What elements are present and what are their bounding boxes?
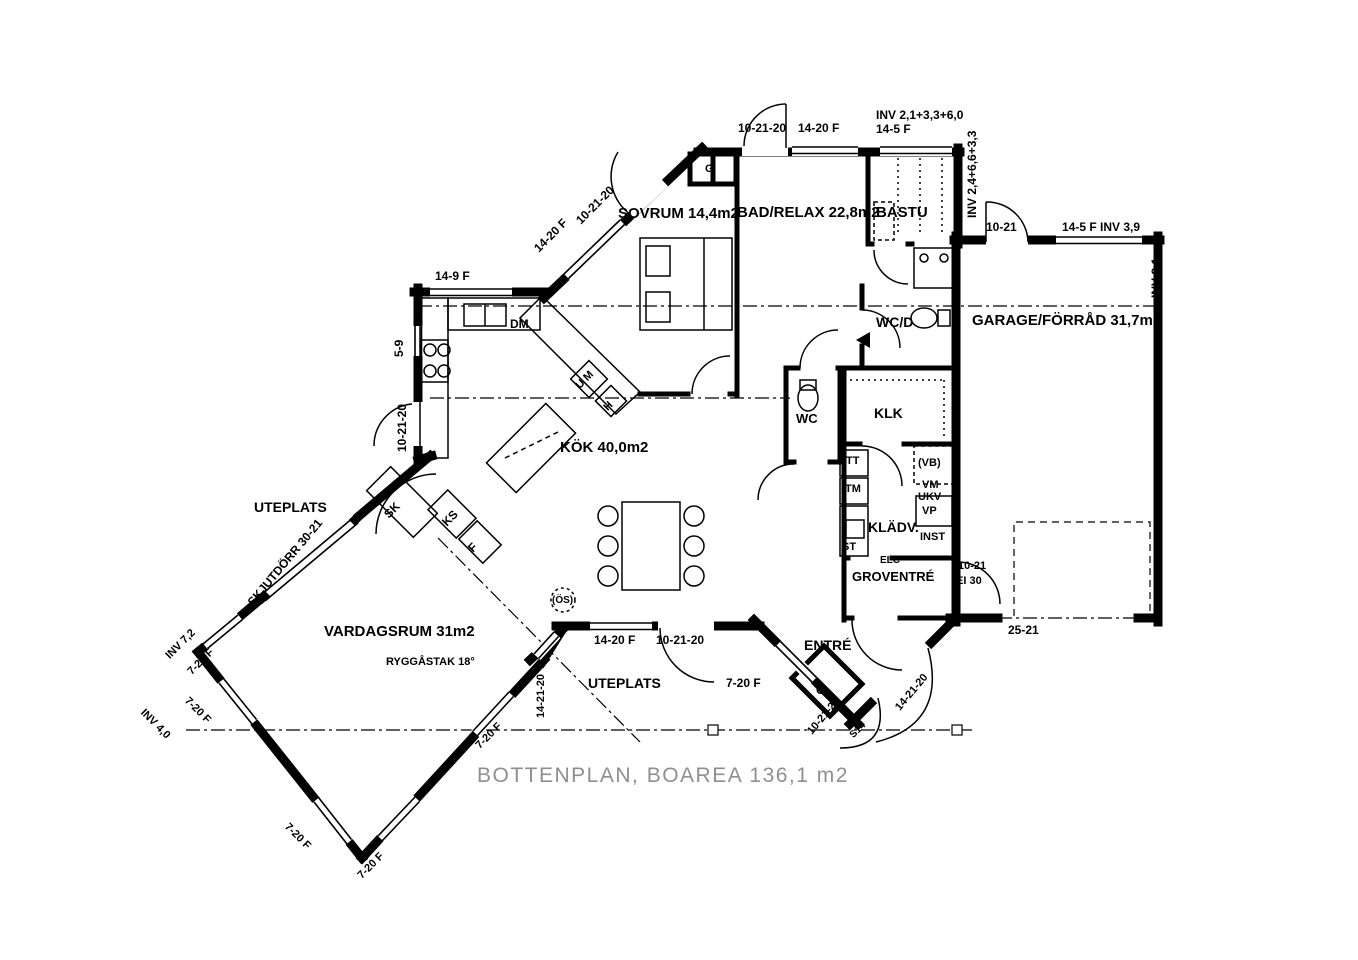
dim-garage-window: 14-5 F INV 3,9 <box>1062 221 1140 233</box>
fixture-label-tt: TT <box>846 456 859 467</box>
room-label-bastu: BASTU <box>876 205 928 220</box>
room-label-wc: WC <box>796 412 818 425</box>
floorplan-drawing <box>0 0 1358 960</box>
dim-window-vert: 14-21-20 <box>536 674 547 718</box>
room-label-kok: KÖK 40,0m2 <box>560 440 648 455</box>
room-label-vardagsrum: VARDAGSRUM 31m2 <box>324 624 475 639</box>
room-label-wcd: WC/D <box>876 315 913 329</box>
fixture-label-vp: VP <box>922 506 937 517</box>
fixture-label-elc: ELC <box>880 556 900 566</box>
fixture-label-vm: VM <box>922 480 939 491</box>
room-label-ryggastak: RYGGÅSTAK 18° <box>386 657 475 668</box>
dim-garage-door: 10-21 <box>986 221 1017 233</box>
room-label-bad-relax: BAD/RELAX 22,8m2 <box>737 205 880 220</box>
room-label-klk: KLK <box>874 406 903 420</box>
dim-kitchen-small: 5-9 <box>393 340 405 357</box>
fixture-label-g-sovrum: G <box>705 164 714 175</box>
dim-uteplats-window: 14-20 F <box>594 634 635 646</box>
room-label-uteplats-bottom: UTEPLATS <box>588 676 661 690</box>
fixture-label-st: ST <box>842 542 856 553</box>
fixture-label-os: (ÖS) <box>552 596 573 606</box>
room-label-sovrum: SOVRUM 14,4m2 <box>618 206 739 221</box>
dim-ei30: EI 30 <box>956 576 982 587</box>
room-label-kladv: KLÄDV. <box>868 520 919 534</box>
dim-groventre-door: 10-21 <box>958 561 986 572</box>
dim-top-window: 14-20 F <box>798 122 839 134</box>
dim-entre-window: 7-20 F <box>726 677 761 689</box>
fixture-label-dm: DM <box>510 318 529 330</box>
dim-inv-top: INV 2,1+3,3+6,0 <box>876 109 963 121</box>
fixture-label-inst: INST <box>920 532 945 543</box>
dim-kitchen-window: 14-9 F <box>435 270 470 282</box>
drawing-title: BOTTENPLAN, BOAREA 136,1 m2 <box>477 765 849 786</box>
room-label-entre: ENTRÉ <box>804 638 851 652</box>
reference-lines <box>186 306 1156 742</box>
dim-top-door: 10-21-20 <box>738 122 786 134</box>
room-label-garage: GARAGE/FÖRRÅD 31,7m2 <box>972 313 1161 328</box>
dim-kitchen-door: 10-21-20 <box>396 404 408 452</box>
dim-top-window2: 14-5 F <box>876 123 911 135</box>
exterior-walls <box>198 148 1160 858</box>
dim-garage-opening: 25-21 <box>1008 624 1039 636</box>
room-label-uteplats-left: UTEPLATS <box>254 500 327 514</box>
dim-uteplats-door: 10-21-20 <box>656 634 704 646</box>
fixture-label-tm: TM <box>845 484 861 495</box>
floorplan: SOVRUM 14,4m2 BAD/RELAX 22,8m2 BASTU WC/… <box>0 0 1358 960</box>
windows <box>203 147 1142 844</box>
dim-inv-right: INV 2,4+6,6+3,3 <box>966 131 978 218</box>
dim-inv-garage: INV 8,1 <box>1150 258 1162 298</box>
room-label-groventre: GROVENTRÉ <box>852 570 934 583</box>
wall-openings <box>205 150 1142 842</box>
fixture-label-ukv: UKV <box>918 492 941 503</box>
fixture-label-vb: (VB) <box>918 458 941 469</box>
fixture-label-g-entre: G <box>816 684 825 696</box>
